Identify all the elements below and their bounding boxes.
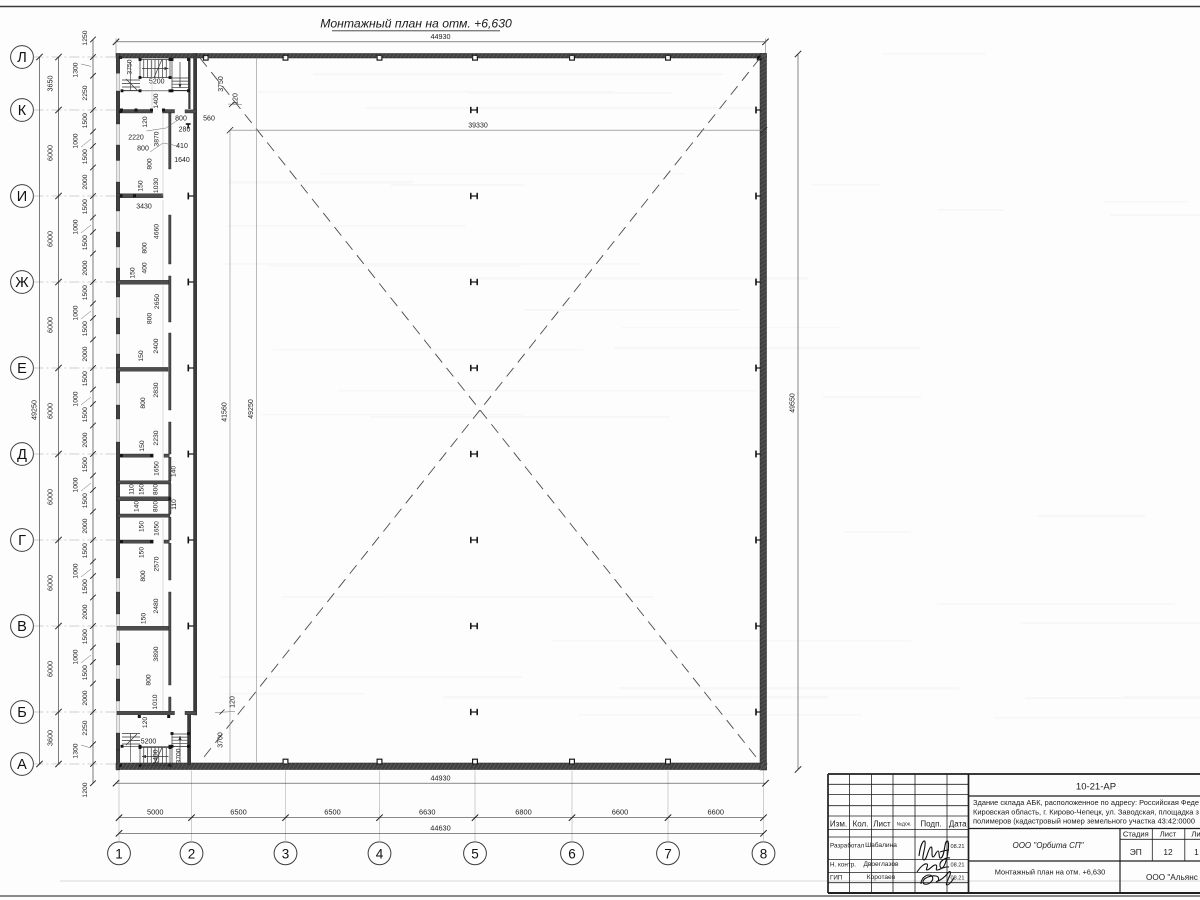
svg-text:Стадия: Стадия (1123, 830, 1149, 839)
svg-text:2: 2 (188, 846, 196, 861)
svg-text:1000: 1000 (73, 391, 80, 406)
svg-text:1500: 1500 (82, 371, 89, 386)
svg-text:Ж: Ж (15, 275, 29, 291)
svg-text:2830: 2830 (153, 382, 160, 397)
svg-text:560: 560 (203, 116, 215, 123)
svg-text:3890: 3890 (153, 646, 160, 661)
svg-text:800: 800 (142, 242, 149, 254)
svg-text:44630: 44630 (430, 823, 451, 832)
svg-text:1500: 1500 (82, 493, 89, 508)
svg-text:1650: 1650 (154, 521, 161, 536)
svg-text:Лист: Лист (873, 819, 891, 828)
svg-text:5200: 5200 (141, 738, 157, 745)
svg-text:800: 800 (146, 674, 153, 686)
svg-text:И: И (17, 189, 27, 205)
svg-text:Монтажный план на отм. +6,630: Монтажный план на отм. +6,630 (320, 17, 512, 31)
svg-text:8: 8 (760, 846, 768, 861)
svg-text:1500: 1500 (82, 235, 89, 250)
svg-text:800: 800 (140, 397, 147, 409)
svg-text:Д: Д (17, 447, 27, 463)
svg-text:1250: 1250 (82, 30, 89, 45)
svg-text:1: 1 (1194, 847, 1199, 857)
svg-text:6000: 6000 (46, 145, 55, 161)
svg-text:800: 800 (137, 145, 149, 152)
svg-text:400: 400 (142, 262, 149, 274)
svg-text:1300: 1300 (73, 62, 80, 77)
svg-text:1010: 1010 (152, 694, 159, 709)
svg-text:1500: 1500 (82, 321, 89, 336)
svg-text:1000: 1000 (73, 219, 80, 234)
svg-text:Б: Б (17, 705, 27, 721)
svg-text:6600: 6600 (708, 808, 724, 817)
svg-text:6000: 6000 (46, 403, 55, 419)
svg-text:280: 280 (179, 127, 191, 134)
svg-text:6000: 6000 (46, 489, 55, 505)
svg-text:Шабалина: Шабалина (865, 841, 897, 849)
svg-text:3870: 3870 (154, 131, 161, 146)
svg-text:1640: 1640 (174, 157, 190, 164)
svg-text:150: 150 (139, 440, 146, 452)
svg-text:1000: 1000 (73, 133, 80, 148)
svg-text:2000: 2000 (82, 260, 89, 275)
svg-text:2250: 2250 (82, 85, 89, 100)
svg-text:Лист: Лист (1160, 830, 1177, 839)
svg-text:6000: 6000 (46, 575, 55, 591)
svg-text:41560: 41560 (222, 402, 229, 422)
svg-text:120: 120 (142, 116, 149, 128)
svg-text:2230: 2230 (153, 430, 160, 445)
svg-text:6800: 6800 (515, 808, 531, 817)
svg-text:1300: 1300 (73, 743, 80, 758)
svg-text:5000: 5000 (147, 808, 163, 817)
svg-text:5: 5 (471, 846, 479, 861)
svg-text:140: 140 (134, 501, 141, 512)
svg-text:1000: 1000 (73, 305, 80, 320)
svg-text:44930: 44930 (431, 32, 451, 41)
svg-text:6500: 6500 (324, 808, 340, 817)
svg-text:Дата: Дата (949, 819, 967, 828)
svg-text:410: 410 (176, 143, 188, 150)
svg-text:800: 800 (153, 484, 160, 495)
svg-text:Л: Л (17, 50, 27, 66)
svg-text:1000: 1000 (73, 563, 80, 578)
svg-text:Кировская область, г. Кирово-Ч: Кировская область, г. Кирово-Чепецк, ул.… (973, 808, 1199, 816)
svg-text:2000: 2000 (82, 346, 89, 361)
svg-text:110: 110 (129, 484, 136, 495)
svg-text:08.21: 08.21 (951, 863, 965, 869)
svg-text:1650: 1650 (154, 461, 161, 476)
svg-text:120: 120 (142, 717, 149, 729)
svg-text:Здание склада АБК, расположенн: Здание склада АБК, расположенное по адре… (973, 799, 1199, 807)
svg-text:Ли: Ли (1191, 830, 1200, 839)
svg-text:3600: 3600 (46, 730, 55, 746)
svg-text:Кол.: Кол. (853, 819, 869, 828)
svg-text:3700: 3700 (217, 732, 224, 748)
svg-text:39330: 39330 (468, 122, 488, 129)
svg-text:150: 150 (138, 180, 145, 192)
svg-text:Двоеглазов: Двоеглазов (863, 861, 899, 868)
svg-text:№док.: №док. (897, 821, 912, 827)
svg-text:2480: 2480 (153, 598, 160, 613)
svg-text:4660: 4660 (154, 224, 161, 239)
svg-text:3430: 3430 (136, 204, 152, 211)
svg-text:120: 120 (229, 696, 236, 708)
svg-text:1: 1 (115, 846, 123, 861)
svg-text:3700: 3700 (176, 748, 183, 763)
svg-text:1030: 1030 (153, 178, 160, 193)
svg-text:1000: 1000 (73, 649, 80, 664)
svg-text:150: 150 (139, 484, 146, 495)
svg-text:1500: 1500 (82, 285, 89, 300)
svg-text:49550: 49550 (790, 393, 797, 413)
svg-text:6500: 6500 (230, 808, 246, 817)
svg-text:150: 150 (130, 267, 137, 279)
svg-text:В: В (17, 619, 27, 635)
svg-text:800: 800 (147, 313, 154, 325)
svg-text:1500: 1500 (82, 629, 89, 644)
svg-text:Коротаев: Коротаев (867, 874, 896, 881)
svg-text:1500: 1500 (82, 579, 89, 594)
svg-text:полимеров (кадастровый номер з: полимеров (кадастровый номер земельного … (973, 818, 1195, 826)
svg-text:2000: 2000 (82, 432, 89, 447)
svg-text:12: 12 (1163, 847, 1173, 857)
svg-text:140: 140 (171, 466, 178, 477)
svg-text:ООО "Орбита СП": ООО "Орбита СП" (1012, 841, 1084, 850)
svg-text:2000: 2000 (82, 690, 89, 705)
svg-text:1500: 1500 (82, 113, 89, 128)
svg-text:7: 7 (664, 846, 672, 861)
svg-text:2220: 2220 (128, 135, 144, 142)
svg-text:1000: 1000 (73, 477, 80, 492)
svg-text:6000: 6000 (46, 661, 55, 677)
svg-text:2400: 2400 (153, 338, 160, 353)
svg-text:2250: 2250 (82, 720, 89, 735)
svg-text:1500: 1500 (82, 457, 89, 472)
svg-text:ГИП: ГИП (830, 875, 843, 882)
svg-text:3: 3 (282, 846, 290, 861)
svg-text:150: 150 (139, 547, 146, 558)
svg-text:2000: 2000 (82, 604, 89, 619)
svg-text:49250: 49250 (248, 399, 255, 419)
svg-text:Монтажный план на отм. +6,630: Монтажный план на отм. +6,630 (995, 868, 1106, 877)
svg-text:10-21-АР: 10-21-АР (1076, 782, 1116, 793)
svg-text:150: 150 (139, 521, 146, 532)
svg-text:К: К (18, 103, 27, 119)
svg-text:1500: 1500 (82, 665, 89, 680)
svg-text:А: А (17, 757, 27, 773)
svg-text:3750: 3750 (127, 59, 134, 74)
svg-text:150: 150 (141, 613, 148, 625)
svg-text:08.21: 08.21 (951, 844, 965, 850)
svg-text:800: 800 (140, 570, 147, 582)
svg-text:6000: 6000 (46, 317, 55, 333)
svg-text:44930: 44930 (431, 774, 451, 783)
svg-text:6000: 6000 (46, 231, 55, 247)
svg-text:6630: 6630 (419, 808, 435, 817)
svg-text:800: 800 (153, 501, 160, 512)
svg-text:2650: 2650 (154, 294, 161, 309)
svg-text:110: 110 (171, 499, 178, 510)
svg-text:Г: Г (18, 533, 26, 549)
svg-text:Разработал: Разработал (830, 842, 865, 850)
svg-text:2570: 2570 (154, 556, 161, 571)
svg-text:800: 800 (175, 116, 187, 123)
svg-text:1400: 1400 (153, 749, 160, 764)
svg-text:800: 800 (147, 158, 154, 170)
svg-text:Е: Е (17, 361, 27, 377)
svg-text:150: 150 (138, 350, 145, 362)
svg-text:5200: 5200 (149, 79, 165, 86)
svg-text:2000: 2000 (82, 518, 89, 533)
svg-text:Изм.: Изм. (830, 819, 847, 828)
svg-text:1500: 1500 (82, 543, 89, 558)
svg-text:Н. контр.: Н. контр. (830, 862, 856, 869)
svg-text:1500: 1500 (82, 199, 89, 214)
svg-text:ООО "Альянс: ООО "Альянс (1146, 873, 1198, 882)
svg-text:2000: 2000 (82, 174, 89, 189)
svg-text:1500: 1500 (82, 407, 89, 422)
svg-text:3750: 3750 (218, 76, 225, 92)
svg-text:1200: 1200 (82, 782, 89, 797)
svg-text:1500: 1500 (82, 149, 89, 164)
svg-text:1400: 1400 (153, 93, 160, 108)
svg-text:ЭП: ЭП (1130, 847, 1142, 857)
svg-text:Подп.: Подп. (920, 819, 941, 828)
svg-text:6600: 6600 (612, 808, 628, 817)
svg-text:3650: 3650 (46, 76, 55, 92)
svg-text:6: 6 (568, 846, 576, 861)
svg-text:4: 4 (376, 846, 384, 861)
svg-text:49250: 49250 (30, 400, 39, 420)
